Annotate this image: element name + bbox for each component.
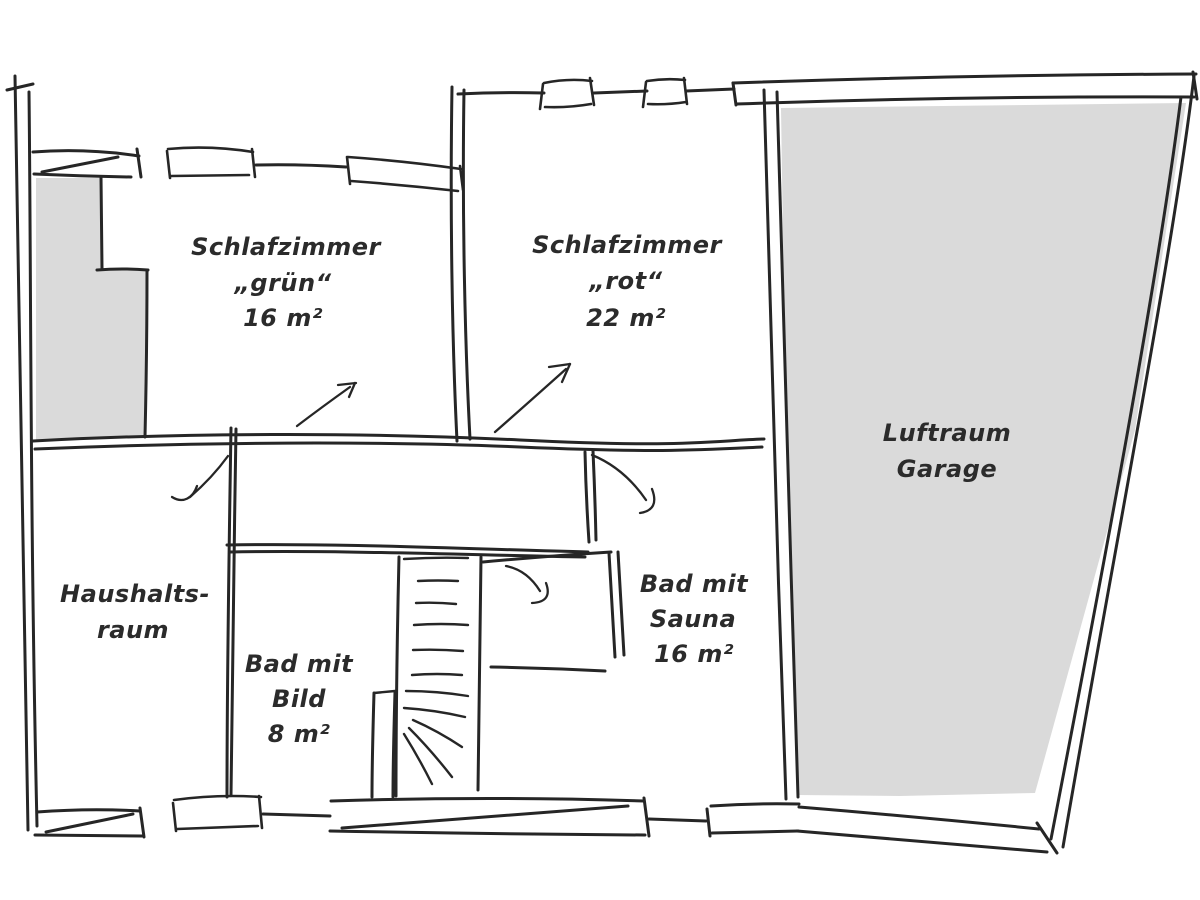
wall-segment bbox=[458, 93, 544, 94]
chimney-outline bbox=[101, 177, 102, 268]
stair-tread bbox=[412, 674, 462, 675]
wall-segment bbox=[594, 91, 647, 93]
room-label-bedroom-red: „rot“ bbox=[588, 267, 662, 295]
room-label-garage-void: Garage bbox=[897, 455, 997, 483]
wall-segment bbox=[263, 814, 330, 816]
room-label-bedroom-green: „grün“ bbox=[233, 269, 331, 297]
stair-tread bbox=[413, 650, 463, 651]
room-label-bath-picture: Bild bbox=[272, 685, 326, 713]
room-label-bath-sauna: Sauna bbox=[650, 605, 736, 633]
room-label-bedroom-green: Schlafzimmer bbox=[191, 233, 382, 261]
stair-tread bbox=[404, 558, 468, 559]
stair-tread bbox=[414, 624, 468, 625]
wall-segment bbox=[712, 831, 798, 833]
room-label-bath-sauna: 16 m² bbox=[654, 640, 734, 668]
room-label-bath-sauna: Bad mit bbox=[640, 570, 749, 598]
wall-segment bbox=[35, 835, 142, 836]
room-label-utility-room: Haushalts- bbox=[60, 580, 210, 608]
floorplan-canvas: Schlafzimmer „grün“ 16 m² Schlafzimmer „… bbox=[0, 0, 1200, 900]
room-label-bath-picture: 8 m² bbox=[268, 720, 331, 748]
room-label-bedroom-red: 22 m² bbox=[586, 304, 666, 332]
chimney-outline bbox=[97, 269, 148, 270]
wall-segment bbox=[649, 819, 706, 821]
stair-tread bbox=[418, 581, 458, 582]
room-label-bedroom-green: 16 m² bbox=[243, 304, 323, 332]
stair-tread bbox=[416, 603, 456, 604]
room-label-bedroom-red: Schlafzimmer bbox=[532, 231, 723, 259]
wall-segment bbox=[686, 89, 734, 91]
room-label-utility-room: raum bbox=[97, 616, 169, 644]
room-label-garage-void: Luftraum bbox=[883, 419, 1011, 447]
room-label-bath-picture: Bad mit bbox=[245, 650, 354, 678]
window-marker bbox=[171, 175, 249, 176]
floorplan-page: Schlafzimmer „grün“ 16 m² Schlafzimmer „… bbox=[0, 0, 1200, 900]
